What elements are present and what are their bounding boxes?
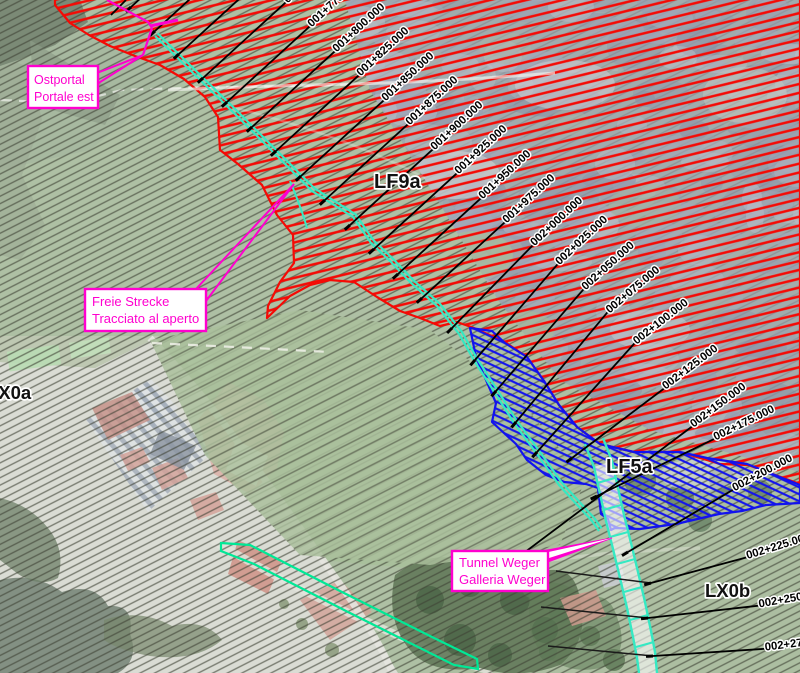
svg-text:LX0a: LX0a (0, 382, 32, 403)
svg-text:LX0b: LX0b (705, 580, 750, 601)
svg-text:LF9a: LF9a (374, 171, 422, 193)
svg-text:Tunnel Weger: Tunnel Weger (459, 555, 541, 570)
svg-text:Tracciato al aperto: Tracciato al aperto (92, 311, 199, 326)
svg-text:Galleria Weger: Galleria Weger (459, 572, 546, 587)
svg-text:Portale est: Portale est (34, 90, 94, 104)
svg-text:LF5a: LF5a (606, 456, 654, 478)
svg-text:Freie Strecke: Freie Strecke (92, 294, 169, 309)
svg-text:Ostportal: Ostportal (34, 73, 85, 87)
